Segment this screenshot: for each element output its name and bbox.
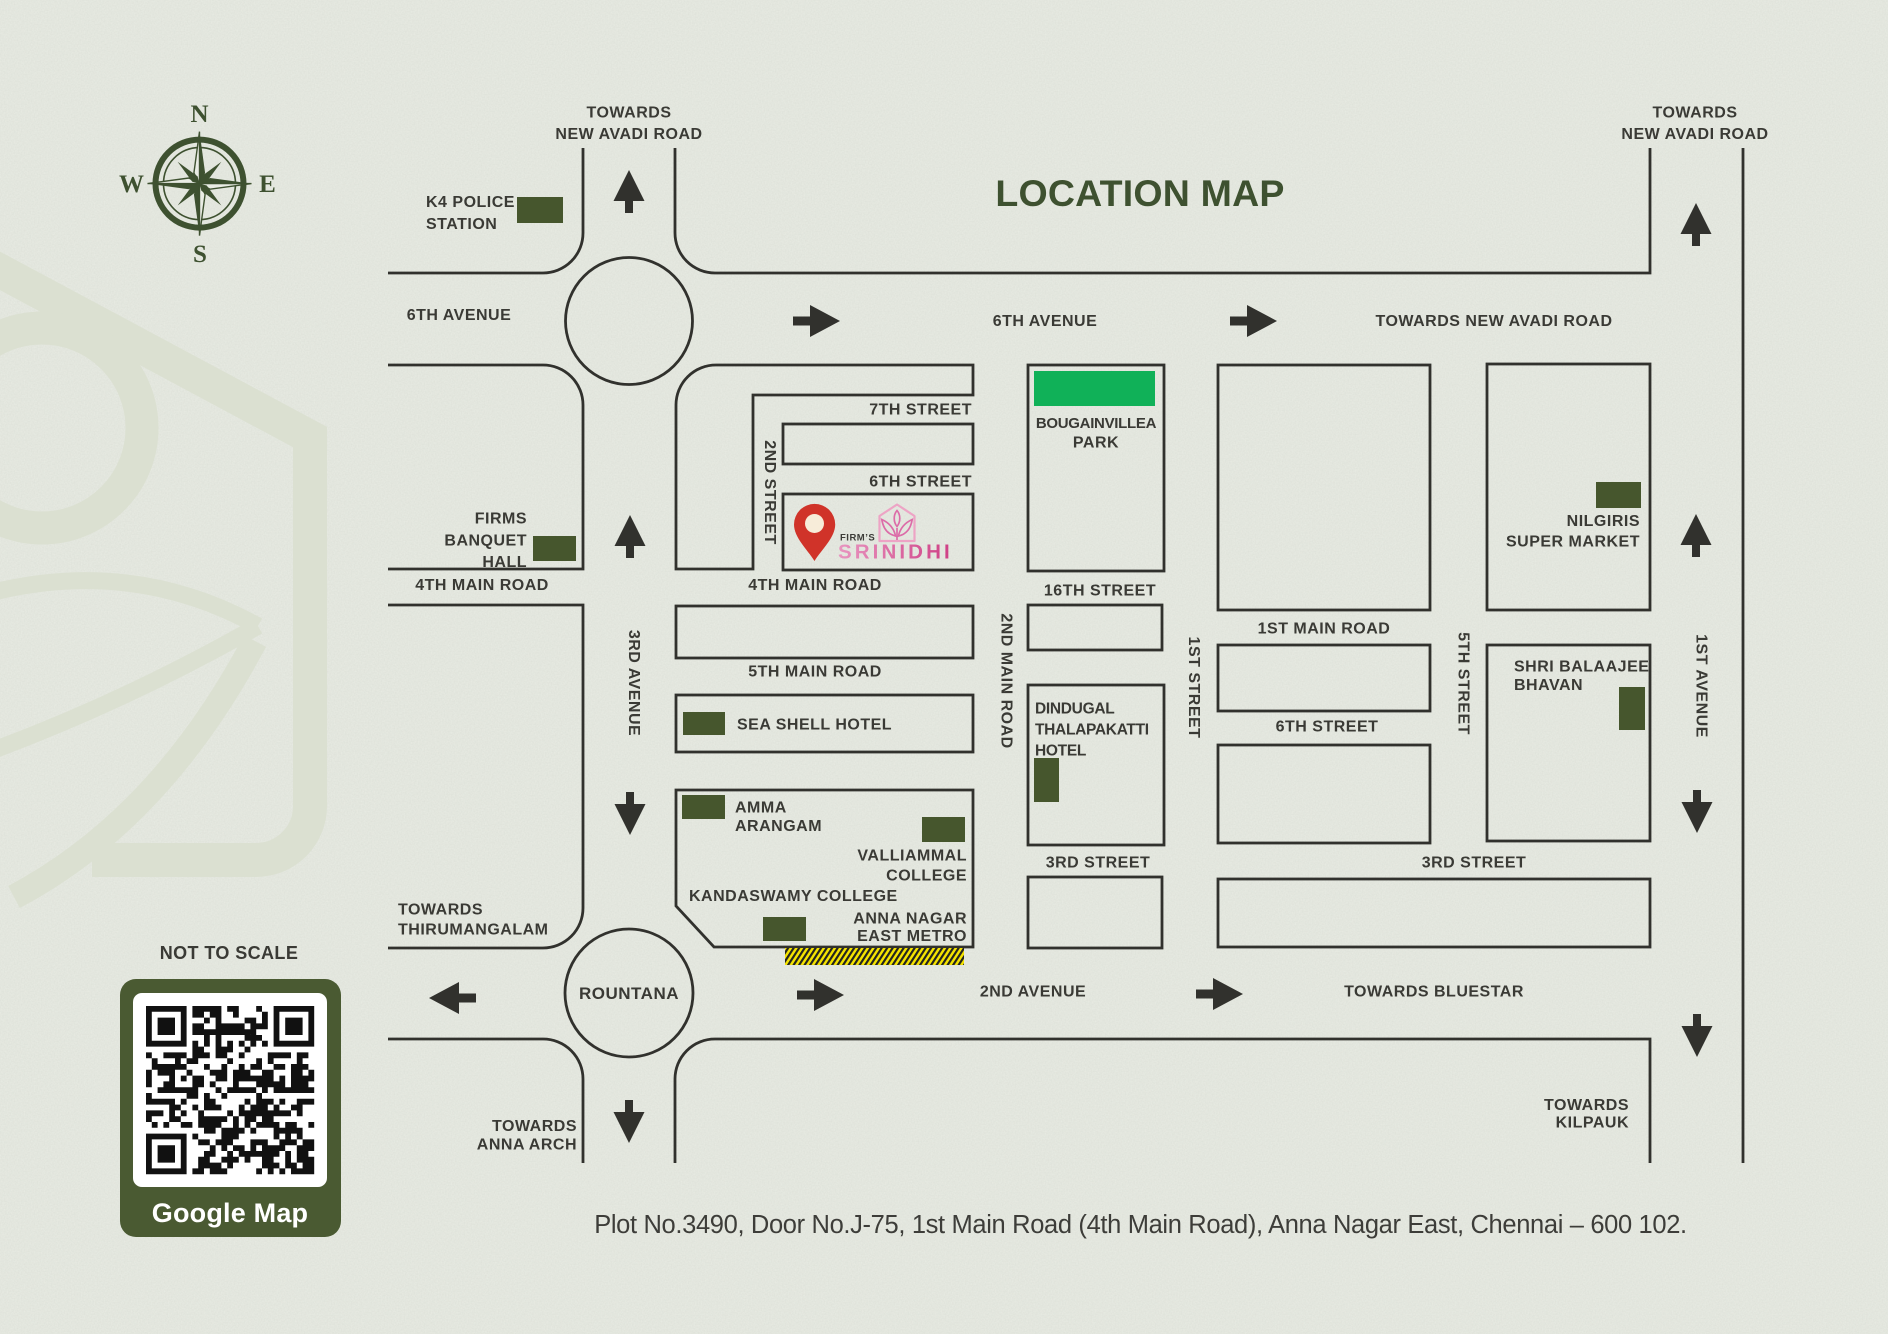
svg-text:AMMA: AMMA <box>735 800 787 817</box>
svg-text:Google Map: Google Map <box>152 1198 309 1228</box>
svg-text:DINDUGAL: DINDUGAL <box>1035 701 1114 718</box>
svg-text:4TH MAIN ROAD: 4TH MAIN ROAD <box>415 577 549 594</box>
svg-text:ANNA NAGAR: ANNA NAGAR <box>853 911 967 928</box>
svg-text:EAST METRO: EAST METRO <box>857 928 967 945</box>
svg-text:2ND STREET: 2ND STREET <box>761 440 778 545</box>
svg-text:HALL: HALL <box>482 554 527 571</box>
svg-text:ANNA ARCH: ANNA ARCH <box>477 1137 577 1154</box>
svg-text:4TH MAIN ROAD: 4TH MAIN ROAD <box>748 577 882 594</box>
svg-text:S: S <box>193 241 207 268</box>
svg-text:TOWARDS NEW AVADI ROAD: TOWARDS NEW AVADI ROAD <box>1375 313 1612 330</box>
svg-text:THALAPAKATTI: THALAPAKATTI <box>1035 722 1149 739</box>
svg-text:NOT TO SCALE: NOT TO SCALE <box>160 943 298 963</box>
svg-text:6TH AVENUE: 6TH AVENUE <box>407 307 512 324</box>
svg-text:ROUNTANA: ROUNTANA <box>579 984 679 1003</box>
svg-text:SHRI BALAAJEE: SHRI BALAAJEE <box>1514 659 1649 676</box>
svg-text:6TH AVENUE: 6TH AVENUE <box>993 313 1098 330</box>
svg-text:BOUGAINVILLEA: BOUGAINVILLEA <box>1036 415 1157 432</box>
svg-text:TOWARDS: TOWARDS <box>398 902 483 919</box>
svg-text:TOWARDS: TOWARDS <box>1653 105 1738 122</box>
svg-text:3RD STREET: 3RD STREET <box>1422 855 1527 872</box>
svg-text:E: E <box>259 171 276 198</box>
svg-text:HOTEL: HOTEL <box>1035 743 1086 760</box>
svg-text:KANDASWAMY COLLEGE: KANDASWAMY COLLEGE <box>689 888 898 905</box>
svg-text:FIRMS: FIRMS <box>475 511 527 528</box>
svg-text:SUPER MARKET: SUPER MARKET <box>1506 534 1640 551</box>
svg-text:NILGIRIS: NILGIRIS <box>1567 513 1640 530</box>
svg-text:K4 POLICE: K4 POLICE <box>426 194 515 211</box>
svg-text:1ST STREET: 1ST STREET <box>1185 637 1202 739</box>
svg-text:BANQUET: BANQUET <box>444 533 527 550</box>
svg-text:TOWARDS: TOWARDS <box>587 105 672 122</box>
svg-text:7TH STREET: 7TH STREET <box>869 402 972 419</box>
svg-text:16TH STREET: 16TH STREET <box>1044 583 1156 600</box>
svg-text:STATION: STATION <box>426 216 497 233</box>
svg-text:NEW AVADI ROAD: NEW AVADI ROAD <box>555 126 702 143</box>
svg-text:SRINIDHI: SRINIDHI <box>838 541 953 564</box>
svg-text:N: N <box>190 101 208 128</box>
svg-text:6TH STREET: 6TH STREET <box>1276 719 1379 736</box>
svg-text:PARK: PARK <box>1073 435 1119 452</box>
svg-text:VALLIAMMAL: VALLIAMMAL <box>857 848 967 865</box>
svg-text:1ST AVENUE: 1ST AVENUE <box>1693 634 1710 738</box>
svg-text:COLLEGE: COLLEGE <box>886 868 967 885</box>
svg-text:5TH MAIN ROAD: 5TH MAIN ROAD <box>748 664 882 681</box>
svg-text:Plot No.3490, Door No.J-75, 1s: Plot No.3490, Door No.J-75, 1st Main Roa… <box>594 1211 1687 1239</box>
svg-text:3RD AVENUE: 3RD AVENUE <box>625 630 642 736</box>
svg-text:THIRUMANGALAM: THIRUMANGALAM <box>398 922 548 939</box>
svg-text:BHAVAN: BHAVAN <box>1514 677 1583 694</box>
svg-text:3RD STREET: 3RD STREET <box>1046 855 1151 872</box>
svg-text:NEW AVADI ROAD: NEW AVADI ROAD <box>1621 126 1768 143</box>
svg-text:TOWARDS BLUESTAR: TOWARDS BLUESTAR <box>1344 984 1524 1001</box>
svg-text:TOWARDS: TOWARDS <box>492 1118 577 1135</box>
svg-text:SEA SHELL HOTEL: SEA SHELL HOTEL <box>737 717 892 734</box>
svg-text:LOCATION MAP: LOCATION MAP <box>995 172 1284 214</box>
svg-text:ARANGAM: ARANGAM <box>735 818 822 835</box>
svg-text:2ND MAIN ROAD: 2ND MAIN ROAD <box>998 613 1015 748</box>
svg-text:KILPAUK: KILPAUK <box>1556 1115 1629 1132</box>
svg-text:TOWARDS: TOWARDS <box>1544 1097 1629 1114</box>
svg-text:W: W <box>119 171 144 198</box>
svg-text:5TH STREET: 5TH STREET <box>1455 632 1472 735</box>
svg-text:1ST MAIN ROAD: 1ST MAIN ROAD <box>1258 621 1391 638</box>
svg-text:2ND AVENUE: 2ND AVENUE <box>980 984 1086 1001</box>
svg-text:6TH STREET: 6TH STREET <box>869 474 972 491</box>
